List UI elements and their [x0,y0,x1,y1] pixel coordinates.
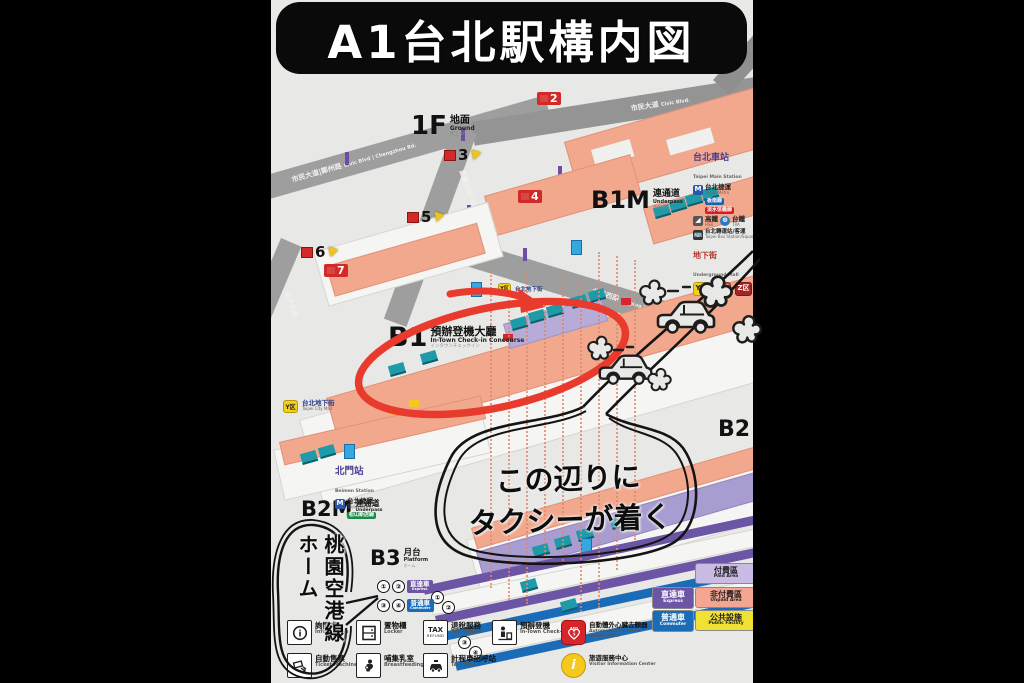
escalator-arrow-icon [326,246,338,258]
taipei-metro-icon: M [335,499,345,509]
floor-label-b1: B1 預辦登機大廳 In-Town Check-in Concourse インタ… [388,326,524,350]
floor-label-b3: B3 月台 Platform ホーム [370,549,428,568]
airport-mrt-tag [521,193,529,200]
locker-icon [361,625,377,641]
visitor-info-icon: i [571,658,575,673]
page-title: A1台北駅構内図 [327,6,695,71]
exit-badge-6: 6 [301,243,337,261]
mall-zone-y: Y区 [693,282,710,296]
connector-line [526,272,528,604]
mall-zone-y: Y区 [498,283,511,294]
unpaid-area-chip: 非付費區Unpaid Area [695,587,753,608]
exit-badge-3: 3 [444,146,480,164]
exit-badge-7: 7 [324,264,348,277]
annotation-platform-note: 桃園空港線 ホーム [294,534,346,679]
legend-title: 台北車站 [693,153,729,163]
connector-line [598,252,600,608]
city-mall-label-b1: Y区 台北地下街 [498,283,543,294]
facility-marker [621,298,631,305]
mall-zone-z: Z区 [735,282,752,296]
exit-badge-2: 2 [537,92,561,105]
annotation-taxi-note-line2: タクシーが着く [454,493,685,543]
bannan-line-chip: 板南線 [705,198,724,205]
floor-label-b1m: B1M 連通道 Underpass 連絡通路 [591,190,683,212]
express-chip: 直達車Express [652,587,694,609]
legend-aed: AED 自動體外心臟去顫器Automated External Defibril… [561,620,671,645]
mall-zone-y: Y区 [283,400,298,413]
exit-badge-5: 5 [407,208,443,226]
paid-area-chip: 付費區Paid Area [695,563,753,584]
platform-commuter-chip: ③ ④ 普通車Commuter [377,599,434,612]
elevator-marker [471,282,482,297]
aed-icon: AED [566,625,582,641]
floor-label-b2: B2 大廳 Concourse コンコース [718,420,753,440]
median-tick [523,248,527,261]
exit-badge-4: 4 [518,190,542,203]
connector-line [580,282,582,612]
legend-intown-checkin: 預辦登機In-Town Check-in [492,620,567,645]
mall-zone-k: K区 [714,282,731,296]
public-facility-chip: 公共設施Public Facility [695,610,753,631]
elevator-marker [344,444,355,459]
hsr-icon: ◢ [693,216,703,226]
platform-express-chip: ① ② 直達車Express [377,580,433,593]
intown-checkin-icon [497,625,513,641]
breastfeeding-icon [361,658,377,674]
title-banner: A1台北駅構内図 [276,2,747,74]
songshan-xindian-line-chip: 松山新店線 [347,512,376,519]
airport-mrt-tag [327,267,335,274]
legend-locker: 置物櫃Locker [356,620,407,645]
legend-visitor-info: i 旅遊服務中心Visitor Information Center [561,653,671,678]
road-yanping-label: 延平北路 [283,290,301,318]
city-mall-label: Y区 台北地下街 Taipei City Mall [283,400,335,413]
escalator-arrow-icon [432,211,444,223]
airport-mrt-tag [407,212,419,223]
screenshot-root: 市民大道|鄭州路 Civic Blvd | Chengzhou Rd. 市民大道… [0,0,1024,683]
taipei-metro-icon: M [693,185,703,195]
floor-label-1f: 1F 地面 Ground 地上 1F [411,115,475,138]
facility-marker [409,400,419,407]
elevator-marker [571,240,582,255]
airport-mrt-tag [301,247,313,258]
bus-icon: 🚌 [693,230,703,240]
beimen-station-legend: 北門站 Beimen Station M 台北捷運Taipei Metro 松山… [335,460,376,519]
taipei-main-station-legend: 台北車站 Taipei Main Station M 台北捷運Taipei Me… [693,146,753,296]
median-tick [345,152,349,165]
tra-icon: ⊕ [720,216,730,226]
platform-number-2: ② [442,601,455,614]
legend-tax-refund: TAXREFUND 退稅服務Tax Refund [423,620,482,645]
airport-mrt-tag [444,150,456,161]
legend-taxi-stand: 計程車招呼站Taxi Stand [423,653,496,678]
tamsui-xinyi-line-chip: 淡水信義線 [705,207,734,214]
escalator-arrow-icon [469,149,481,161]
airport-mrt-tag [540,95,548,102]
taxi-stand-icon [428,658,444,674]
road-yanping [271,238,301,408]
